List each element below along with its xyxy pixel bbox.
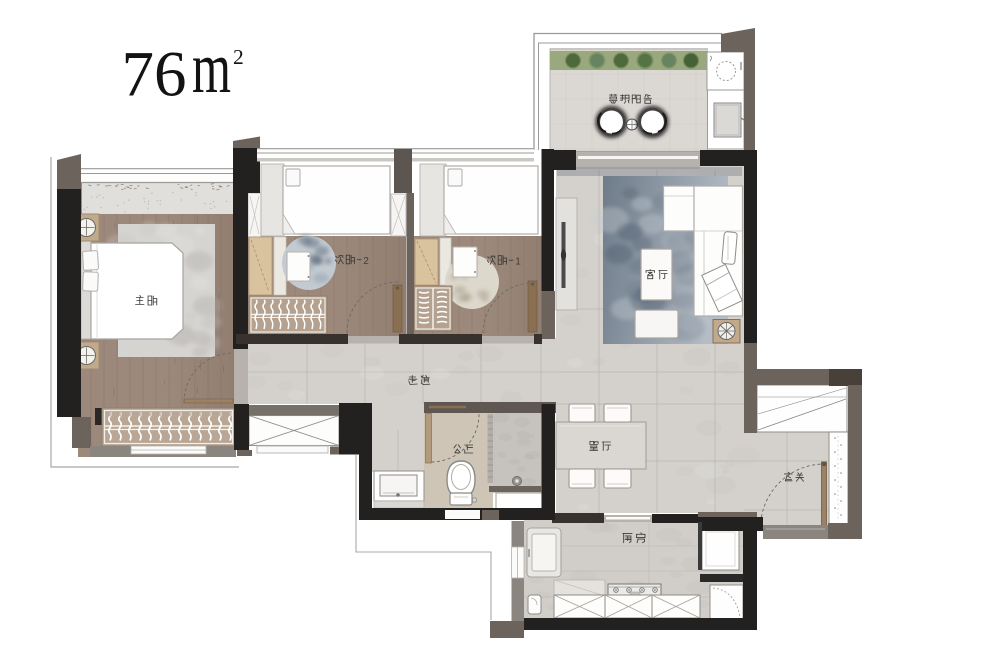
svg-text:m: m <box>192 27 231 108</box>
svg-text:76: 76 <box>122 39 187 111</box>
svg-text:2: 2 <box>233 45 244 69</box>
svg-text:2: 2 <box>363 256 369 267</box>
svg-text:1: 1 <box>515 256 521 267</box>
